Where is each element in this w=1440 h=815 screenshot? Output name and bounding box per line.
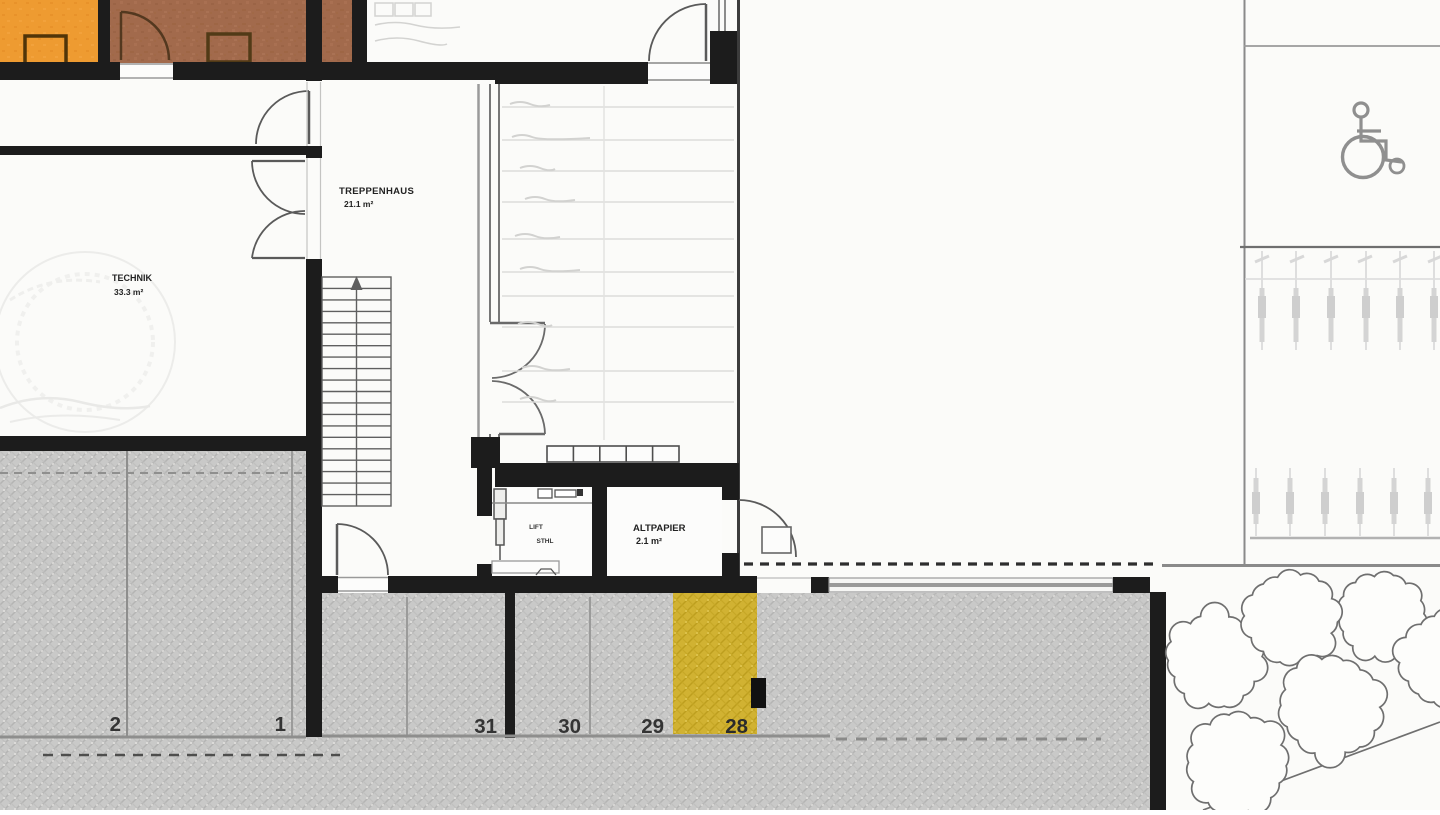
svg-text:TECHNIK: TECHNIK — [112, 273, 152, 283]
svg-text:ALTPAPIER: ALTPAPIER — [633, 523, 686, 534]
svg-text:LIFT: LIFT — [529, 524, 543, 531]
svg-text:STHL: STHL — [537, 538, 554, 545]
svg-text:31: 31 — [474, 715, 497, 738]
svg-text:29: 29 — [641, 715, 664, 738]
svg-text:28: 28 — [725, 715, 748, 738]
svg-text:30: 30 — [558, 715, 581, 738]
svg-text:2: 2 — [110, 713, 121, 736]
svg-text:33.3 m²: 33.3 m² — [114, 287, 143, 297]
svg-text:2.1 m²: 2.1 m² — [636, 536, 662, 546]
svg-text:21.1 m²: 21.1 m² — [344, 199, 373, 209]
svg-text:1: 1 — [275, 713, 286, 736]
svg-text:TREPPENHAUS: TREPPENHAUS — [339, 186, 414, 197]
